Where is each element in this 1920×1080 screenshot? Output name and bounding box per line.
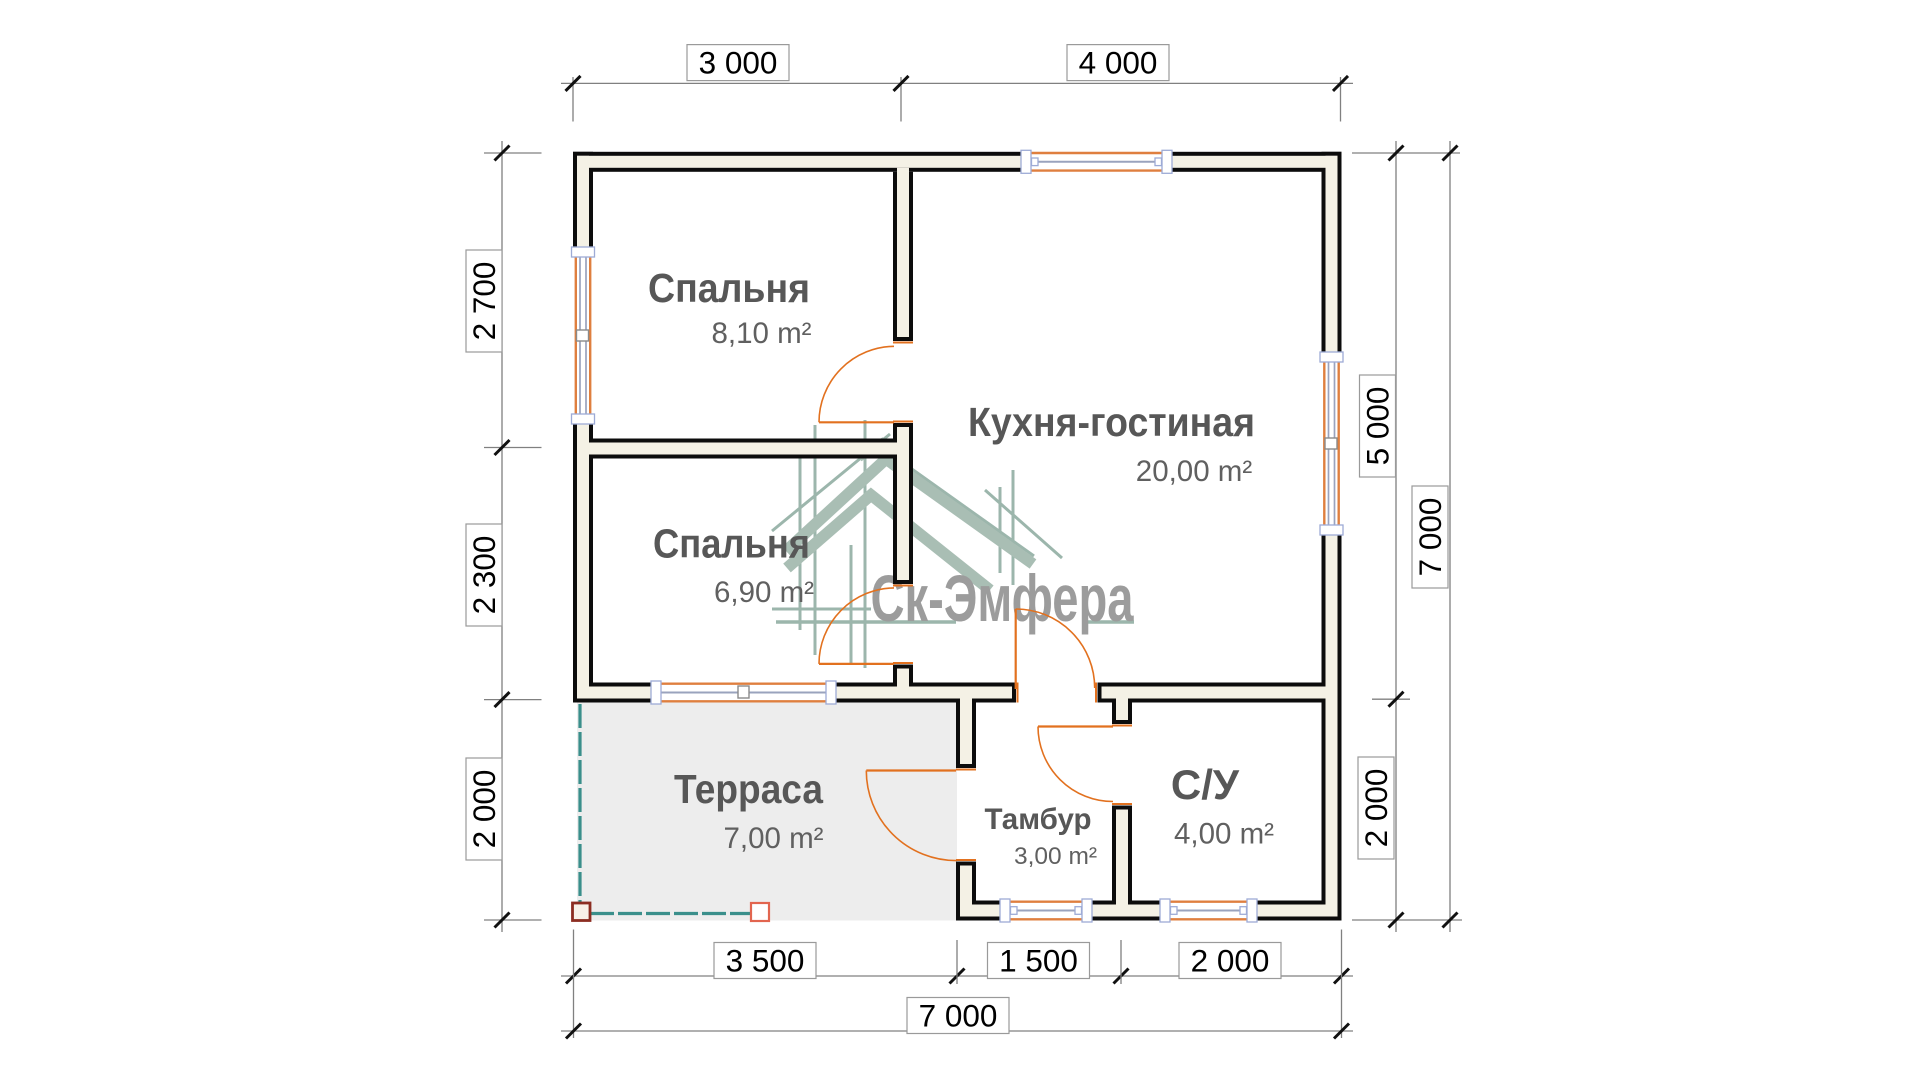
svg-text:3 500: 3 500 [726,943,805,979]
svg-text:7 000: 7 000 [1412,498,1448,577]
svg-text:4 000: 4 000 [1079,45,1158,81]
svg-text:2 000: 2 000 [1191,943,1270,979]
svg-text:С/У: С/У [1171,761,1240,808]
svg-text:4,00 m²: 4,00 m² [1174,818,1274,851]
svg-text:3,00 m²: 3,00 m² [1014,843,1097,870]
svg-text:Кухня-гостиная: Кухня-гостиная [968,399,1255,445]
svg-text:7 000: 7 000 [919,998,998,1034]
svg-text:1 500: 1 500 [999,943,1078,979]
svg-text:Тамбур: Тамбур [985,803,1092,836]
svg-text:3 000: 3 000 [699,45,778,81]
svg-text:2 000: 2 000 [466,770,502,849]
svg-text:20,00 m²: 20,00 m² [1136,455,1253,488]
svg-text:2 000: 2 000 [1358,769,1394,848]
svg-text:5 000: 5 000 [1360,387,1396,466]
svg-text:8,10 m²: 8,10 m² [711,317,811,350]
svg-text:2 300: 2 300 [466,536,502,615]
svg-text:2 700: 2 700 [466,262,502,341]
svg-text:Спальня: Спальня [653,521,810,567]
svg-text:6,90 m²: 6,90 m² [714,576,814,609]
svg-text:Спальня: Спальня [648,265,810,311]
svg-text:Терраса: Терраса [674,766,824,812]
svg-text:7,00 m²: 7,00 m² [723,822,823,855]
